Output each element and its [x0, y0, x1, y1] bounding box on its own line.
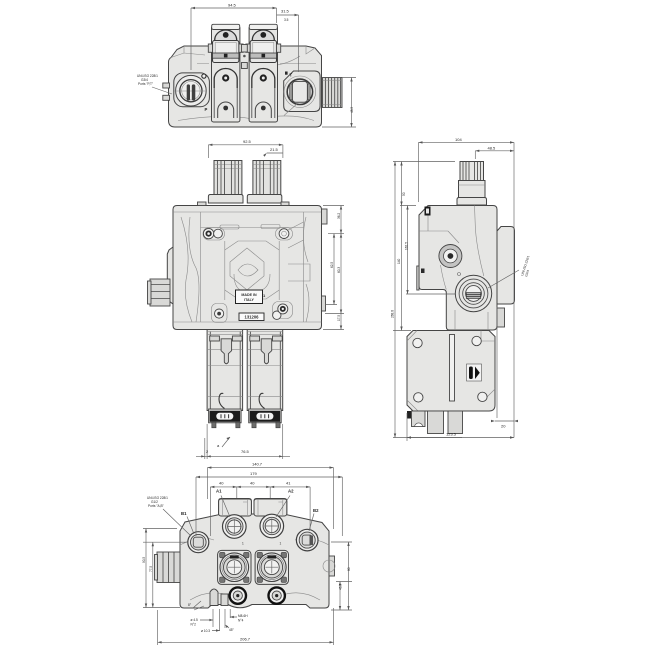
svg-text:21.5: 21.5	[270, 147, 279, 152]
svg-text:MADE IN: MADE IN	[241, 293, 257, 297]
svg-text:Ports "A,B": Ports "A,B"	[148, 504, 164, 508]
svg-text:48.5: 48.5	[350, 107, 354, 113]
svg-text:48.5: 48.5	[488, 145, 497, 150]
svg-text:131206: 131206	[245, 315, 260, 320]
svg-text:179: 179	[250, 471, 257, 476]
svg-text:B1: B1	[181, 511, 187, 516]
svg-text:1: 1	[280, 542, 282, 546]
svg-text:268.8: 268.8	[391, 310, 395, 318]
svg-text:1: 1	[242, 542, 244, 546]
svg-text:ITALY: ITALY	[244, 298, 254, 302]
svg-text:140.7: 140.7	[252, 461, 263, 466]
svg-text:123.5: 123.5	[446, 432, 457, 437]
svg-text:N°4: N°4	[238, 619, 244, 623]
svg-text:45°: 45°	[229, 628, 235, 632]
svg-text:ø 10.3: ø 10.3	[201, 629, 210, 633]
svg-text:40: 40	[219, 481, 224, 486]
svg-text:140: 140	[397, 258, 401, 264]
svg-text:162.5: 162.5	[405, 242, 409, 250]
svg-text:A2: A2	[288, 488, 294, 493]
svg-text:3.5: 3.5	[284, 18, 289, 22]
svg-text:20: 20	[501, 424, 506, 429]
svg-text:206.7: 206.7	[240, 637, 251, 642]
svg-text:A1: A1	[216, 488, 222, 493]
svg-text:ø 4.5: ø 4.5	[191, 618, 198, 622]
svg-text:90.5: 90.5	[142, 557, 146, 563]
svg-text:77.5: 77.5	[149, 566, 153, 572]
svg-text:P: P	[205, 107, 208, 112]
svg-text:62.5: 62.5	[330, 262, 334, 268]
svg-text:N°2: N°2	[191, 623, 197, 627]
svg-text:50: 50	[402, 192, 406, 196]
svg-text:46.5: 46.5	[338, 584, 342, 590]
svg-text:60.3: 60.3	[337, 267, 341, 273]
svg-text:94.5: 94.5	[228, 3, 237, 8]
svg-text:92.5: 92.5	[243, 139, 252, 144]
svg-text:104: 104	[455, 137, 462, 142]
svg-text:76.5: 76.5	[241, 449, 250, 454]
svg-text:Ports "P,T": Ports "P,T"	[138, 82, 153, 86]
svg-text:M8-6H: M8-6H	[238, 614, 248, 618]
svg-text:17.5: 17.5	[337, 315, 341, 321]
svg-text:T: T	[290, 73, 293, 78]
svg-text:41: 41	[286, 481, 291, 486]
svg-text:B2: B2	[313, 508, 319, 513]
svg-text:31.5: 31.5	[281, 9, 290, 14]
svg-text:40: 40	[250, 481, 255, 486]
svg-text:36.2: 36.2	[337, 213, 341, 219]
svg-text:80: 80	[347, 567, 351, 571]
